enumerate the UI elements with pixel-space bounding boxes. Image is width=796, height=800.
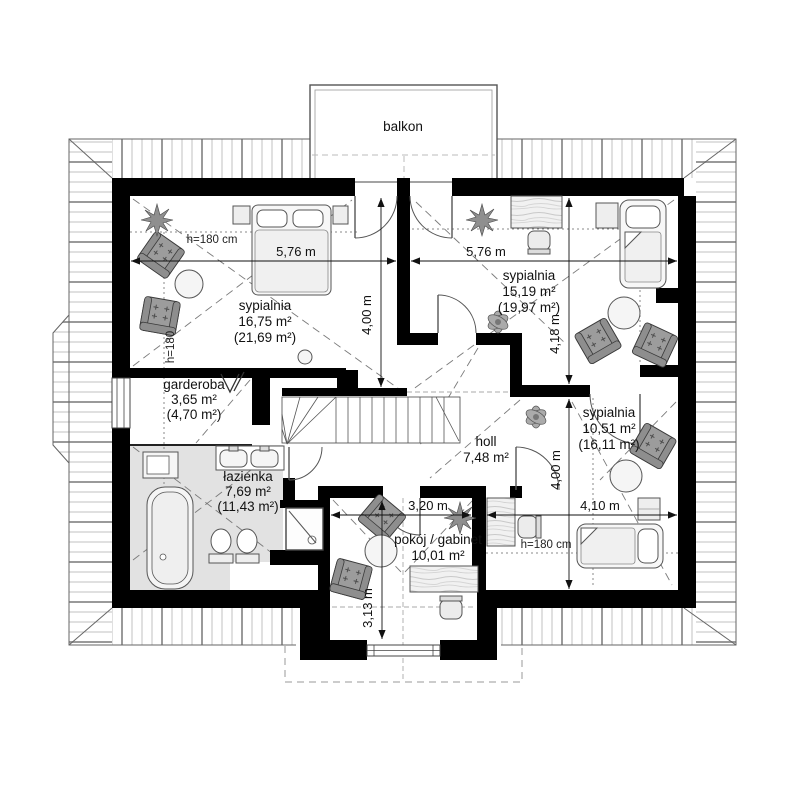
room-label-sypialnia3: sypialnia 10,51 m² (16,11 m²) [578,405,639,452]
nightstand [233,206,250,224]
desk-chair [440,596,462,619]
nightstand [333,206,348,224]
room-name: sypialnia [239,298,292,313]
room-area-roof: (16,11 m²) [578,437,639,452]
staircase [282,397,460,444]
washer [143,452,178,478]
room-area-roof: (11,43 m²) [217,499,278,514]
room-label-sypialnia2: sypialnia 15,19 m² (19,97 m²) [498,268,560,315]
sink [251,450,278,467]
dim-label-office-depth: 3,13 m [360,588,375,628]
armchair-icon [139,296,180,336]
room-name: holl [475,434,496,449]
room-area: 10,01 m² [411,548,465,563]
round-table [365,535,397,567]
dim-label-bed1-depth: 4,00 m [359,295,374,335]
desk-chair [528,231,550,254]
room-name: pokój / gabinet [394,532,482,547]
room-area-roof: (4,70 m²) [167,407,222,422]
dim-label-bed2-depth: 4,18 m [547,314,562,354]
room-name: łazienka [223,469,273,484]
room-label-garderoba: garderoba 3,65 m² (4,70 m²) [163,377,225,422]
dim-label-bed3-depth: 4,00 m [548,450,563,490]
chest [596,203,618,228]
balcony-label: balkon [383,119,423,134]
single-bed [577,524,663,568]
bathtub [147,487,193,589]
room-area: 15,19 m² [502,284,556,299]
floor-plan-drawing: balkon [0,0,796,800]
dim-label-bed3-width: 4,10 m [580,498,620,513]
desk-chair [518,516,541,538]
height-label-bed1-side: h=180 [165,331,177,363]
room-name: sypialnia [583,405,636,420]
room-name: sypialnia [503,268,556,283]
room-area: 10,51 m² [582,421,636,436]
desk [410,566,478,592]
room-area: 16,75 m² [238,314,292,329]
balcony: balkon [310,85,497,182]
single-bed [620,200,666,288]
room-area: 7,69 m² [225,484,271,499]
dormer-window [367,645,440,656]
desk [487,498,515,546]
floor-plan-page: balkon [0,0,796,800]
nightstand [638,498,660,520]
round-table [608,297,640,329]
room-area-roof: (21,69 m²) [234,330,296,345]
height-label-bed1: h=180 cm [187,234,238,246]
dim-label-bed1-width: 5,76 m [276,244,316,259]
stool [298,350,312,364]
room-label-lazienka: łazienka 7,69 m² (11,43 m²) [217,469,278,514]
tap-icon [229,446,238,451]
room-area-roof: (19,97 m²) [498,300,560,315]
shower [286,508,323,550]
toilet [209,529,233,563]
sink [220,450,247,467]
room-label-sypialnia1: sypialnia 16,75 m² (21,69 m²) [234,298,296,345]
round-table [610,460,642,492]
bidet [236,529,259,563]
height-label-bed3: h=180 cm [521,539,572,551]
dim-label-bed2-width: 5,76 m [466,244,506,259]
room-area: 7,48 m² [463,450,509,465]
room-name: garderoba [163,377,225,392]
desk [511,196,562,228]
dim-label-office-width: 3,20 m [408,498,448,513]
garderoba-window [112,378,130,428]
room-area: 3,65 m² [171,392,217,407]
round-table [175,270,203,298]
tap-icon [260,446,269,451]
